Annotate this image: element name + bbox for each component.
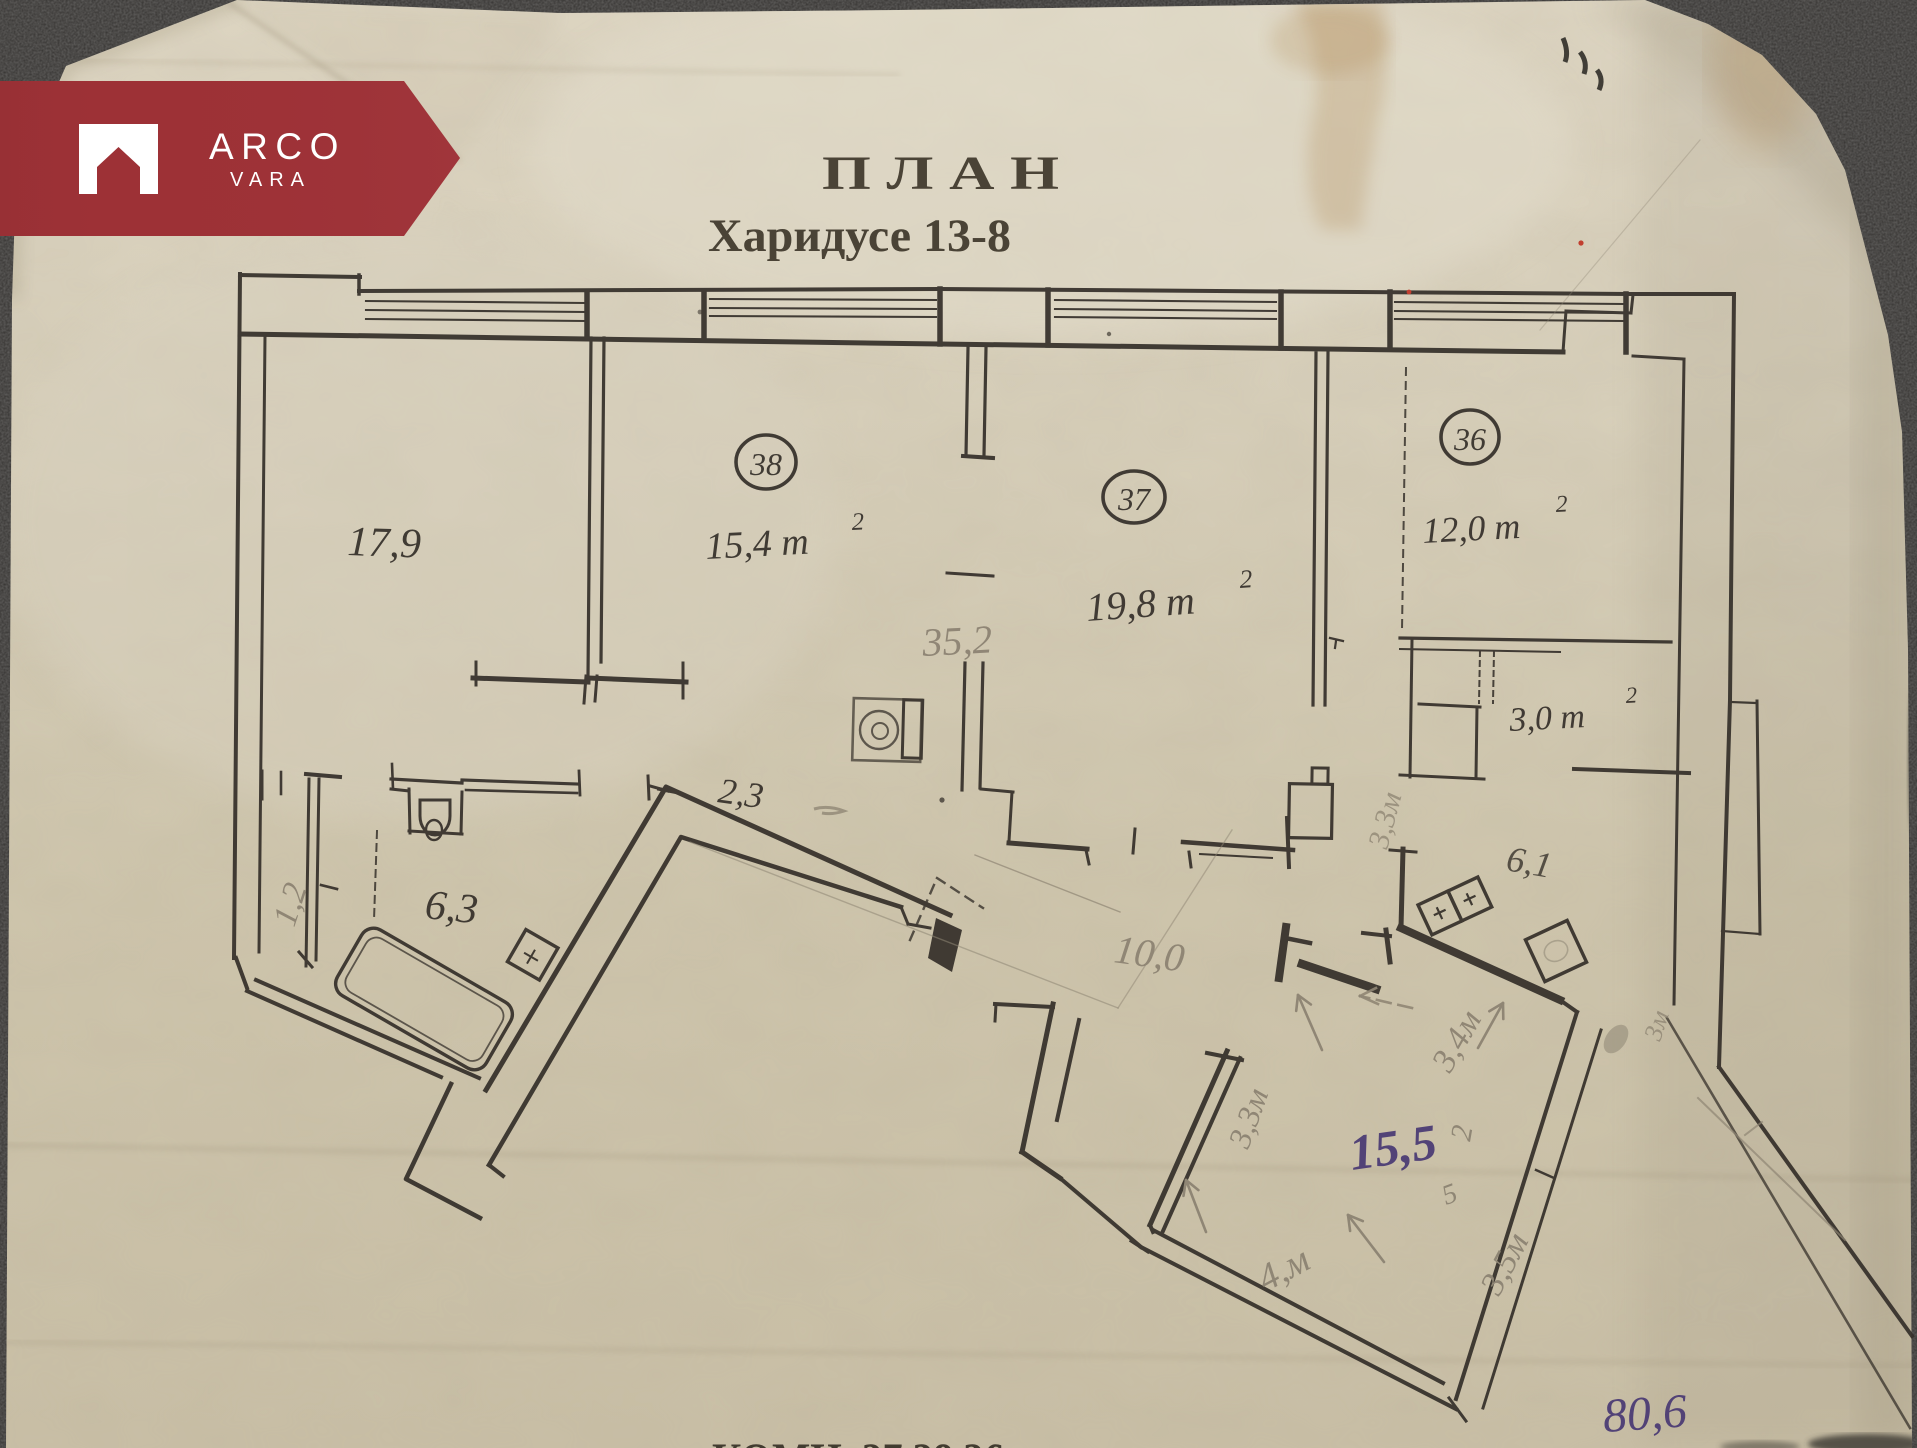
- svg-text:36: 36: [1453, 421, 1486, 457]
- svg-text:35,2: 35,2: [920, 616, 993, 665]
- svg-text:2: 2: [1238, 564, 1253, 594]
- svg-text:2: 2: [851, 508, 865, 536]
- svg-text:12,0 m: 12,0 m: [1421, 506, 1521, 551]
- svg-text:80,6: 80,6: [1601, 1384, 1688, 1443]
- svg-text:VARA: VARA: [230, 169, 311, 191]
- svg-text:38: 38: [749, 446, 782, 482]
- svg-text:37: 37: [1117, 481, 1152, 517]
- svg-text:19,8 m: 19,8 m: [1084, 577, 1196, 629]
- svg-text:2: 2: [1555, 491, 1568, 518]
- svg-text:КОМН. 37,38,36: КОМН. 37,38,36: [712, 1434, 1004, 1448]
- svg-text:Харидусе 13-8: Харидусе 13-8: [708, 210, 1011, 262]
- svg-text:6,3: 6,3: [423, 882, 480, 933]
- svg-text:6,1: 6,1: [1504, 838, 1555, 885]
- svg-text:П Л А Н: П Л А Н: [822, 147, 1059, 200]
- svg-text:ARCO: ARCO: [209, 126, 346, 167]
- svg-text:17,9: 17,9: [347, 519, 422, 568]
- svg-text:2,3: 2,3: [716, 770, 766, 816]
- svg-text:2: 2: [1625, 682, 1638, 708]
- svg-text:15,4 m: 15,4 m: [704, 521, 810, 568]
- svg-text:3,0 m: 3,0 m: [1507, 698, 1585, 739]
